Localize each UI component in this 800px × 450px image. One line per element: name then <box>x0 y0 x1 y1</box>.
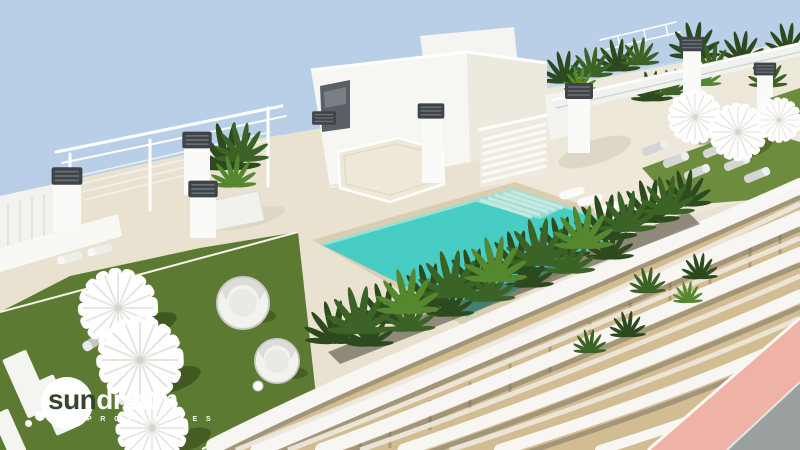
parasol <box>759 100 799 140</box>
palapa-parasol <box>102 322 179 399</box>
round-daybed <box>255 339 299 383</box>
rooftop-render: sundream P R O P E R T I E S <box>0 0 800 450</box>
render-scene <box>0 0 800 450</box>
palapa-parasol <box>120 396 184 450</box>
side-table <box>253 381 263 391</box>
round-daybed <box>217 277 269 329</box>
parasol <box>712 106 763 157</box>
